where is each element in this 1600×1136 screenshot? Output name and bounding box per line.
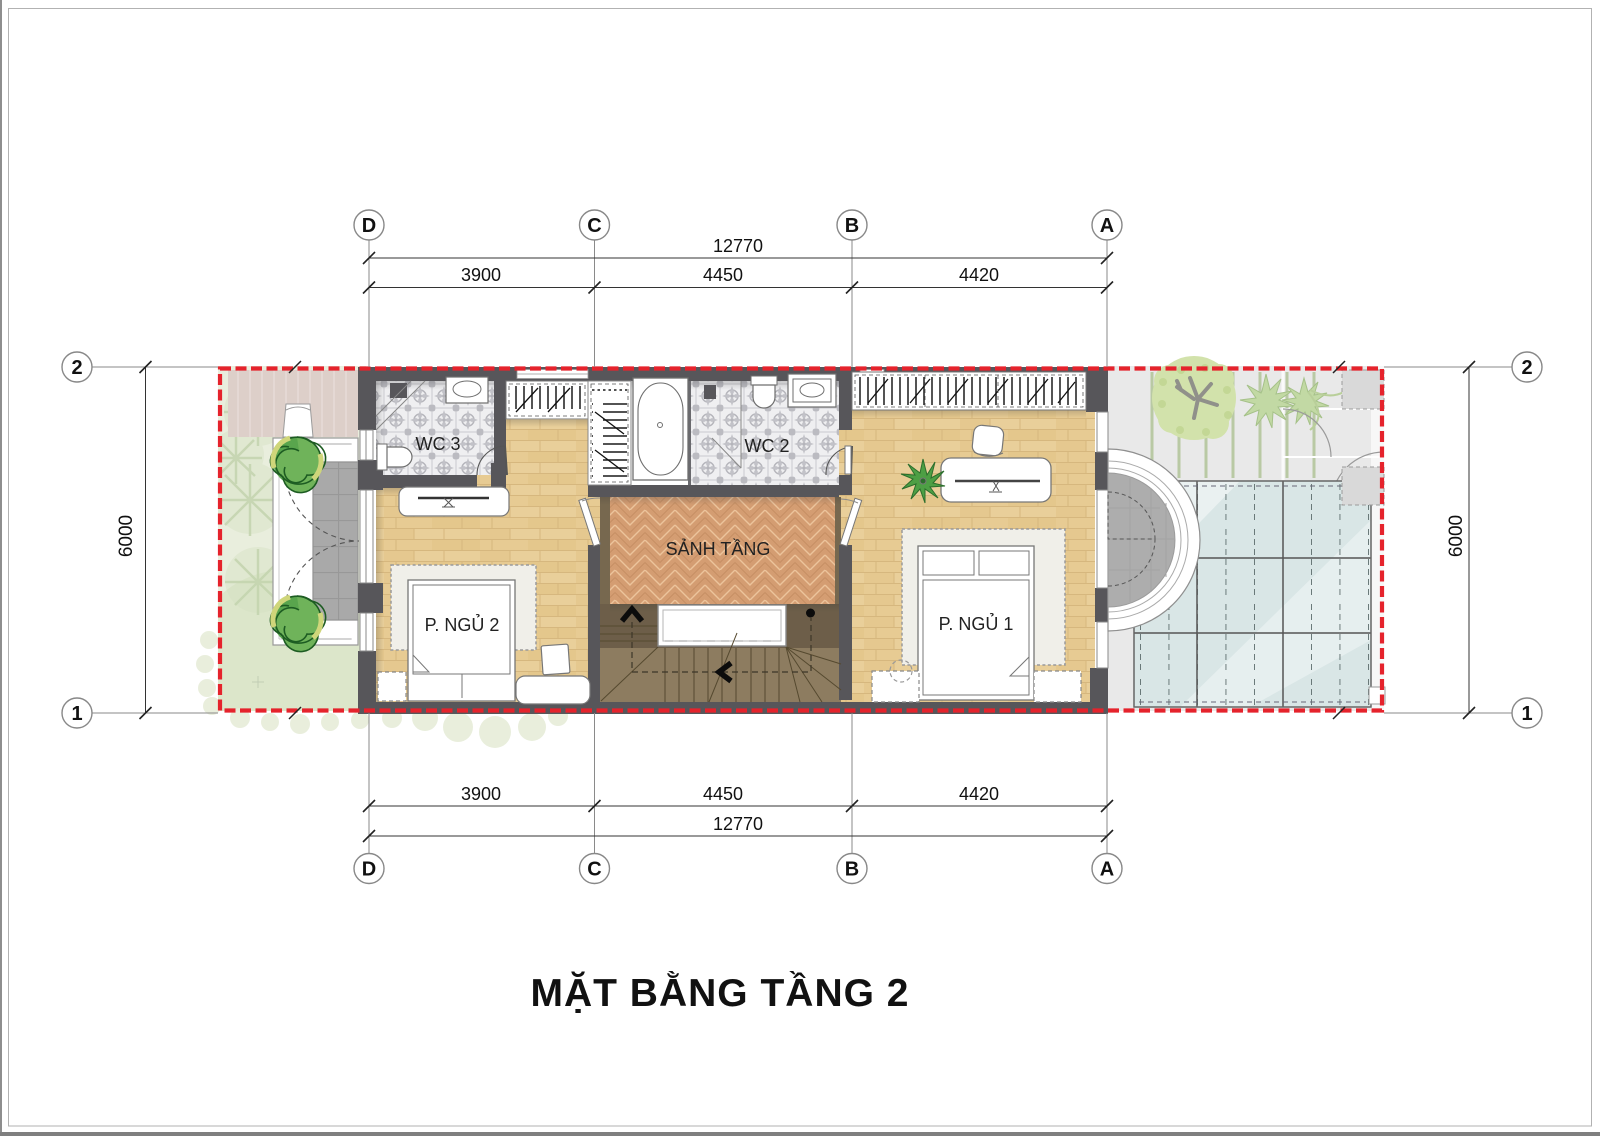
svg-text:D: D <box>362 215 376 237</box>
svg-text:D: D <box>362 859 376 881</box>
svg-text:B: B <box>845 215 859 237</box>
svg-text:P. NGỦ 1: P. NGỦ 1 <box>939 613 1014 634</box>
svg-text:A: A <box>1100 215 1114 237</box>
svg-text:B: B <box>845 859 859 881</box>
svg-text:A: A <box>1100 859 1114 881</box>
svg-text:4450: 4450 <box>703 784 743 804</box>
svg-text:WC 3: WC 3 <box>416 434 461 454</box>
svg-text:C: C <box>587 859 601 881</box>
svg-text:SẢNH TẦNG: SẢNH TẦNG <box>666 538 771 559</box>
svg-text:4420: 4420 <box>959 784 999 804</box>
svg-text:6000: 6000 <box>116 515 137 557</box>
svg-text:MẶT BẰNG TẦNG 2: MẶT BẰNG TẦNG 2 <box>531 971 910 1015</box>
svg-text:2: 2 <box>1521 357 1532 379</box>
svg-text:6000: 6000 <box>1446 515 1467 557</box>
svg-text:1: 1 <box>71 703 82 725</box>
svg-text:C: C <box>587 215 601 237</box>
svg-text:12770: 12770 <box>713 814 763 834</box>
svg-text:3900: 3900 <box>461 784 501 804</box>
svg-text:12770: 12770 <box>713 236 763 256</box>
svg-text:3900: 3900 <box>461 265 501 285</box>
svg-text:P. NGỦ 2: P. NGỦ 2 <box>425 614 500 635</box>
svg-text:1: 1 <box>1521 703 1532 725</box>
svg-text:4420: 4420 <box>959 265 999 285</box>
svg-text:WC 2: WC 2 <box>745 436 790 456</box>
svg-text:4450: 4450 <box>703 265 743 285</box>
svg-text:2: 2 <box>71 357 82 379</box>
